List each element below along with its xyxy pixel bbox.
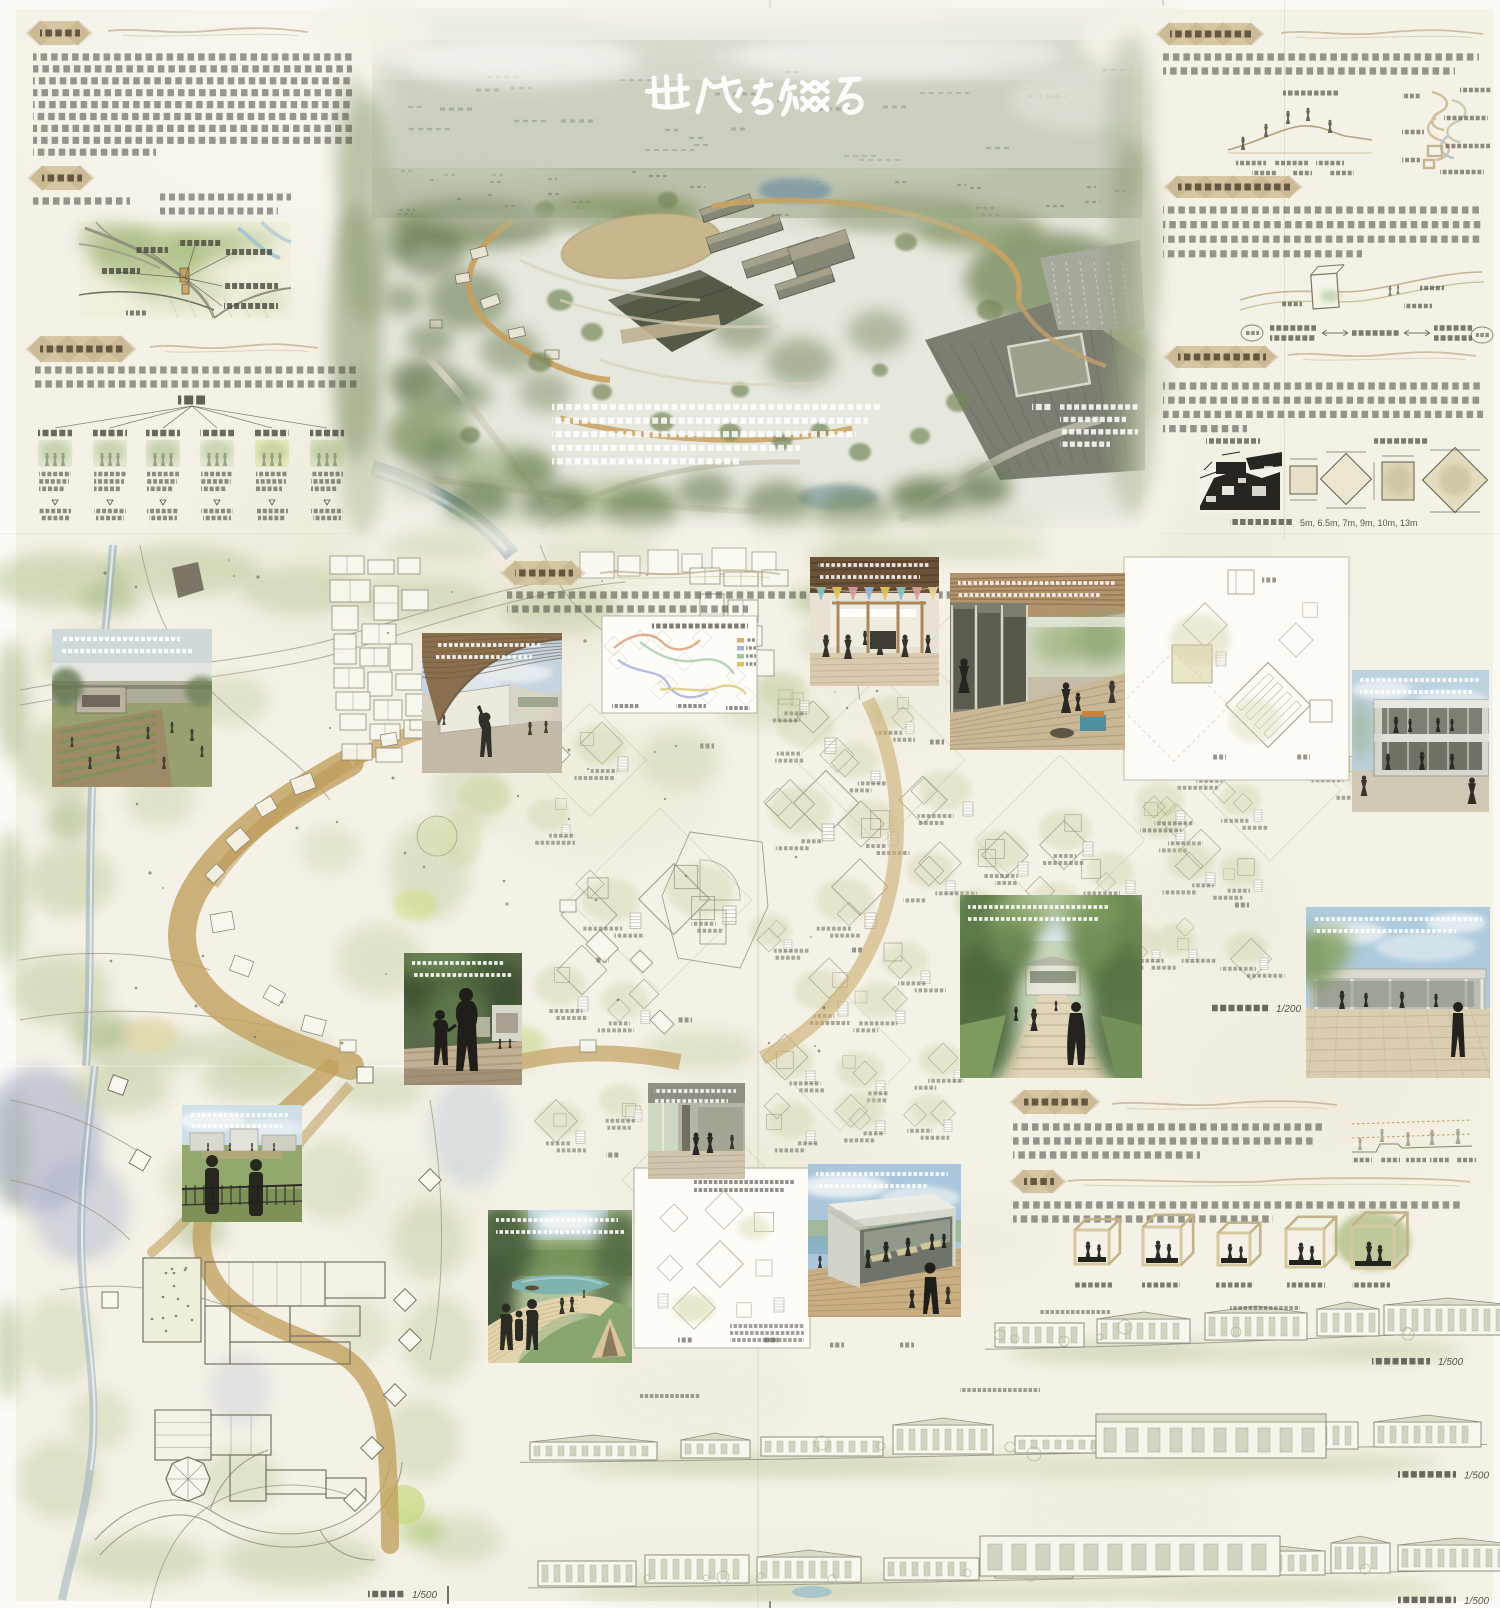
svg-text:1/500: 1/500 xyxy=(1438,1357,1463,1368)
svg-text:1/500: 1/500 xyxy=(1464,1470,1489,1481)
svg-text:1/200: 1/200 xyxy=(1276,1004,1301,1015)
svg-text:5m, 6.5m, 7m, 9m, 10m, 13m: 5m, 6.5m, 7m, 9m, 10m, 13m xyxy=(1300,518,1418,528)
svg-text:1/500: 1/500 xyxy=(1464,1596,1489,1607)
svg-text:1/500: 1/500 xyxy=(412,1590,437,1601)
